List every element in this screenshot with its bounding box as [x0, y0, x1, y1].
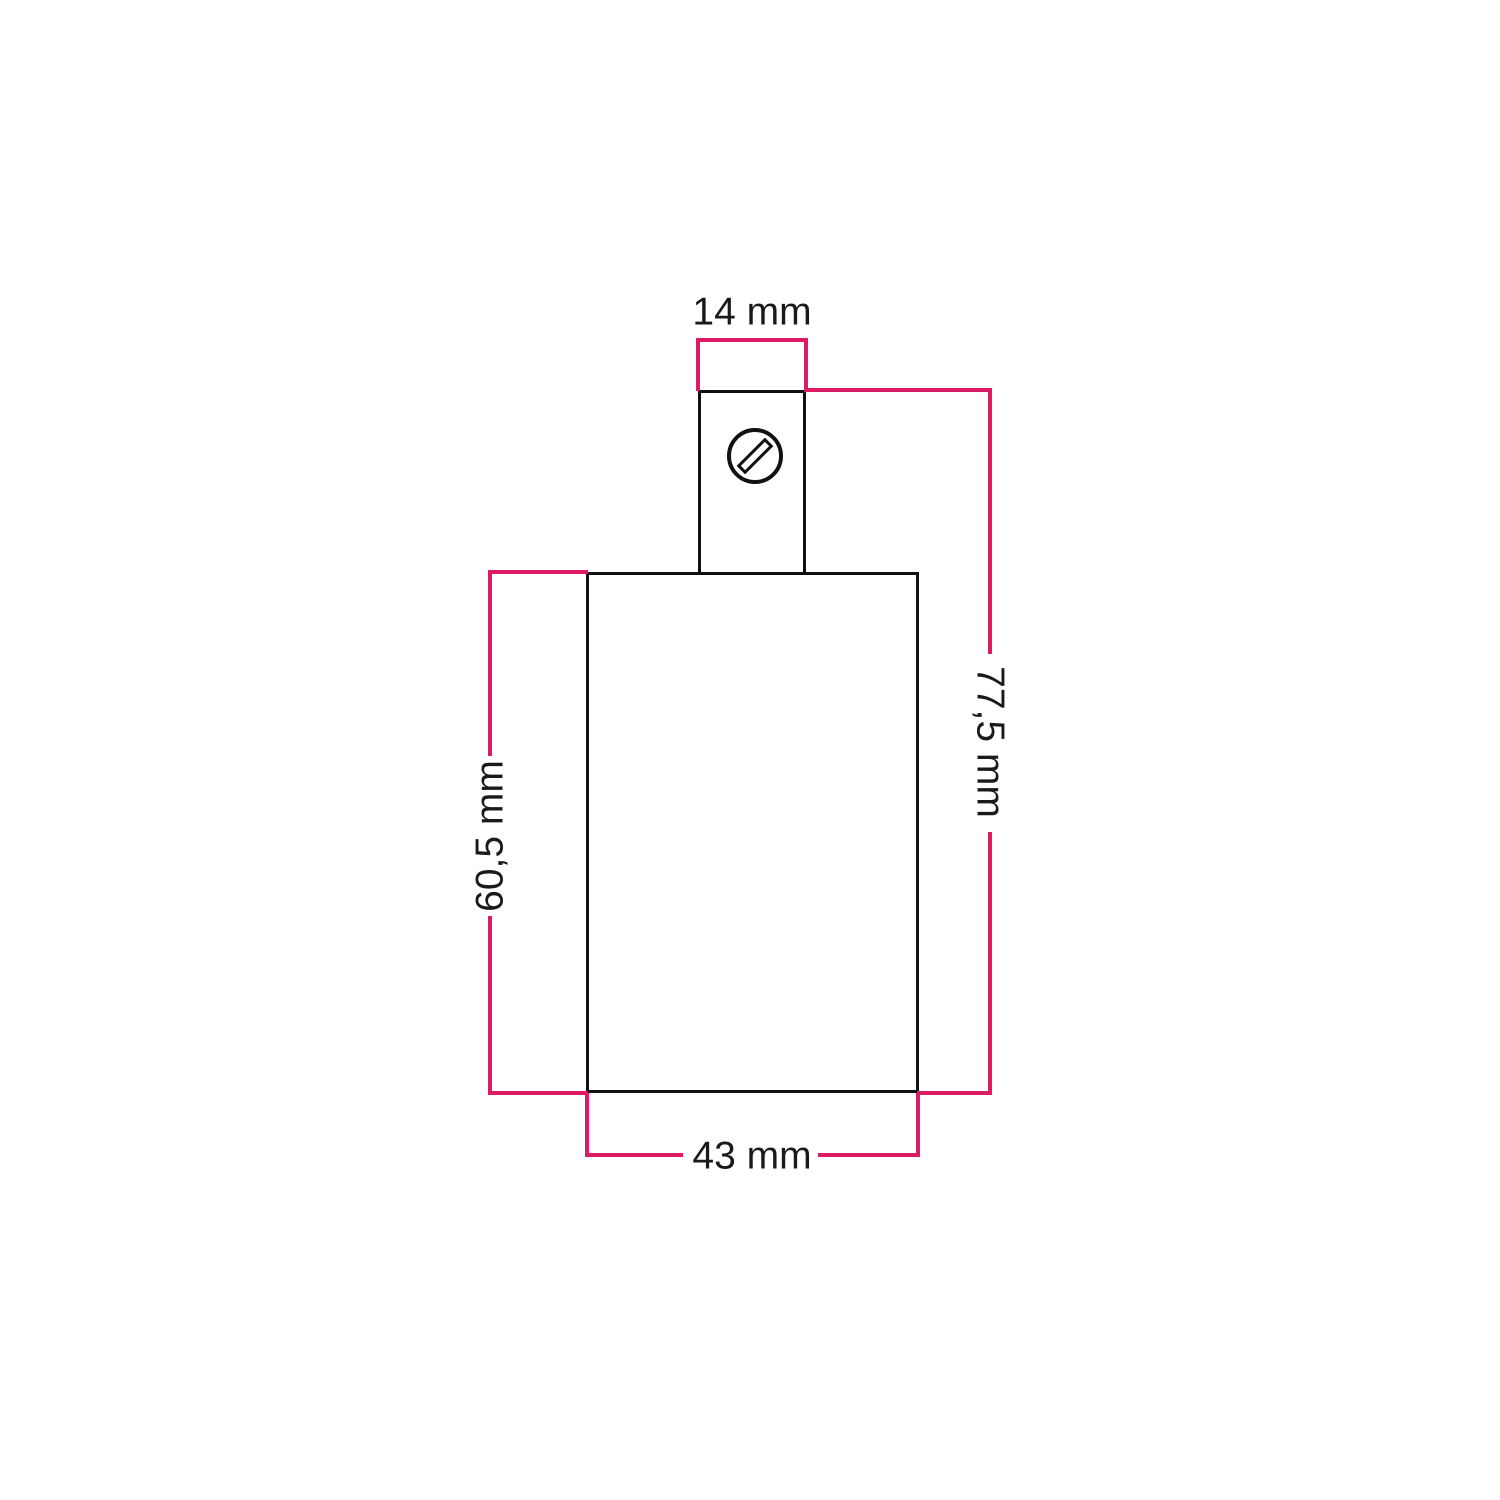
dim-line-top-width-horizontal: [696, 338, 808, 342]
lamp-holder-body-outline: [586, 572, 919, 1093]
dim-line-body-width-left-tick: [585, 1093, 589, 1157]
dim-line-top-width-left-tick: [696, 338, 700, 391]
dim-line-body-height-lower-segment: [488, 916, 492, 1094]
dim-line-total-height-bottom-extension: [917, 1091, 992, 1095]
dimension-diagram: 14 mm 77,5 mm 60,5 mm 43 mm: [0, 0, 1500, 1500]
dimension-label-body-width: 43 mm: [692, 1137, 811, 1176]
dimension-label-total-height: 77,5 mm: [971, 666, 1010, 818]
dim-line-top-width-right-tick: [804, 338, 808, 391]
dim-line-body-width-right-tick: [916, 1093, 920, 1157]
dim-line-body-height-top-extension: [488, 570, 588, 574]
dim-line-body-width-left-stub: [585, 1153, 683, 1157]
dim-line-total-height-upper-segment: [988, 388, 992, 654]
screw-slot-icon: [737, 438, 774, 475]
dim-line-body-height-bottom-extension: [488, 1091, 588, 1095]
dim-line-total-height-top-extension: [804, 388, 992, 392]
dim-line-total-height-lower-segment: [988, 832, 992, 1094]
dim-line-body-height-upper-segment: [488, 570, 492, 756]
dimension-label-body-height: 60,5 mm: [471, 760, 510, 912]
dim-line-body-width-right-stub: [818, 1153, 920, 1157]
screw-head-icon: [727, 428, 783, 484]
dimension-label-top-width: 14 mm: [692, 293, 811, 332]
